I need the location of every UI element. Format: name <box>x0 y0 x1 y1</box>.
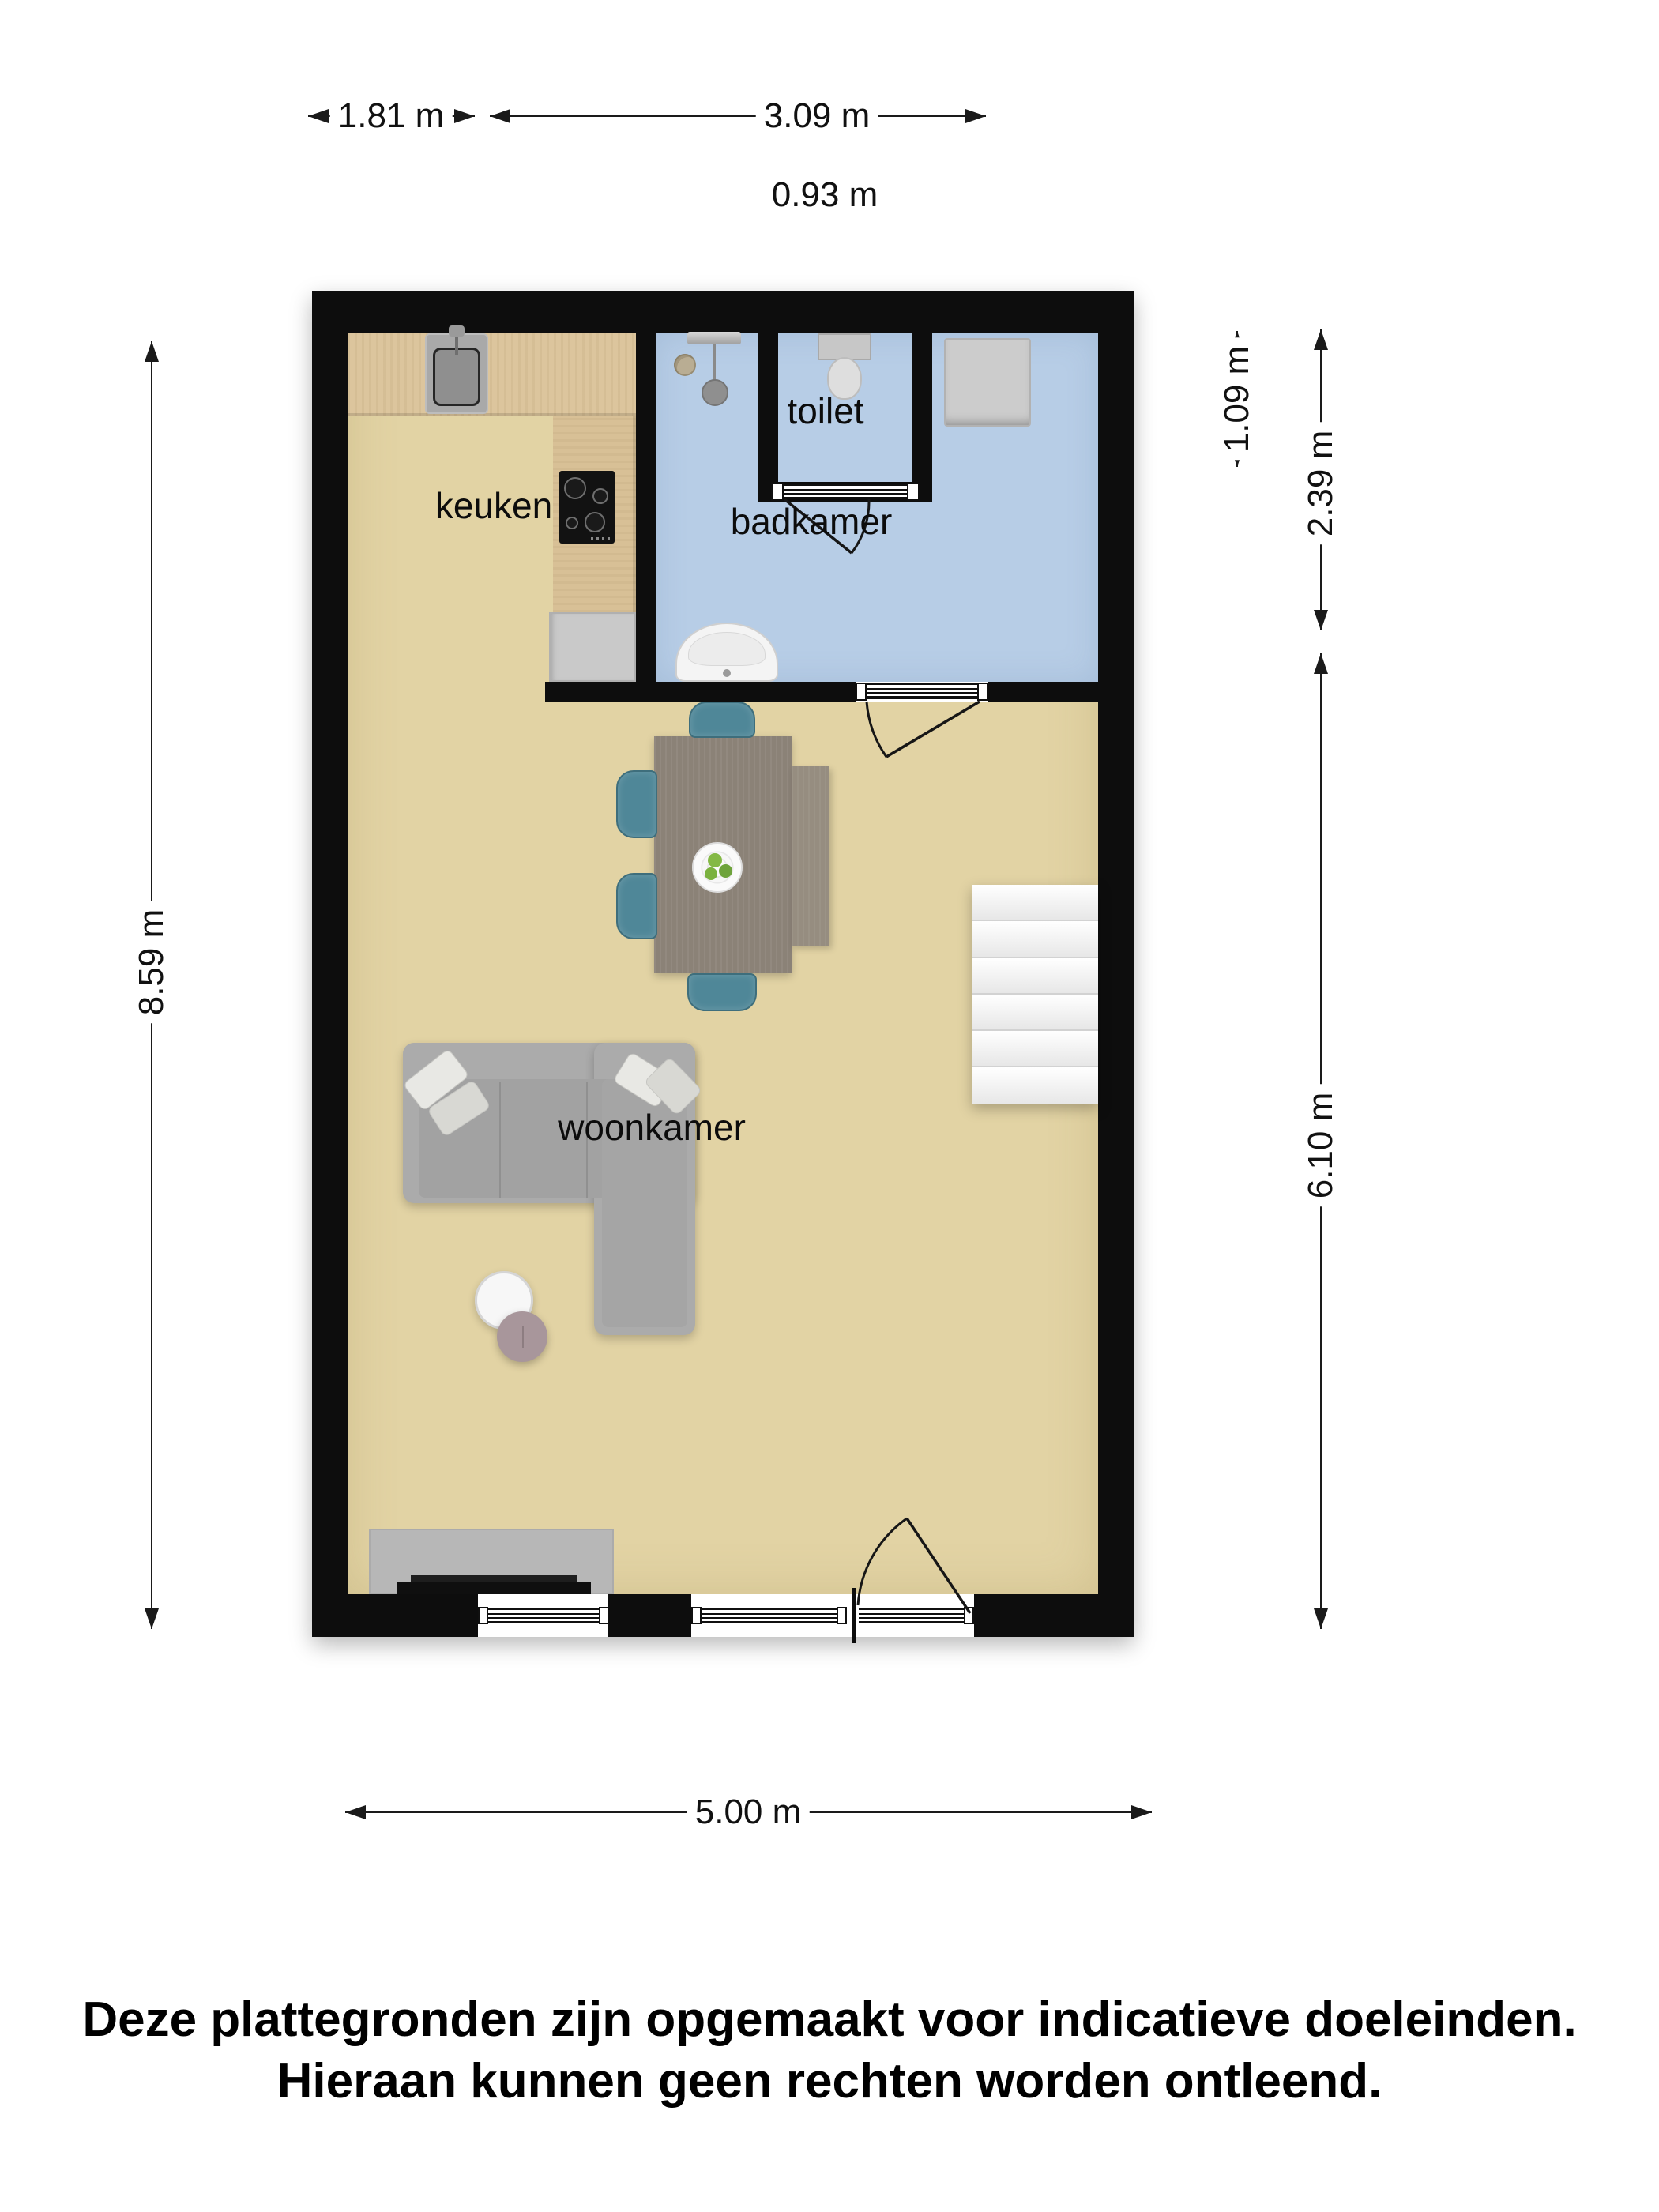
dim-bottom-total: 5.00 m <box>687 1793 810 1832</box>
corner-sofa <box>403 1043 695 1335</box>
dining-chair <box>616 770 657 838</box>
door-frame-post <box>852 1588 856 1643</box>
washing-machine-icon <box>944 338 1031 427</box>
dim-top-bathroom: 3.09 m <box>756 96 878 136</box>
stair-step <box>972 958 1098 995</box>
disclaimer: Deze plattegronden zijn opgemaakt voor i… <box>0 1989 1659 2112</box>
fruit-plate-icon <box>692 842 743 893</box>
burner <box>592 488 608 504</box>
bathroom-door-jamb-left <box>856 683 867 701</box>
room-label-keuken: keuken <box>435 484 552 527</box>
floorplan-page: { "plan": { "rooms": { "keuken": { "labe… <box>0 0 1659 2212</box>
kitchen-appliance-icon <box>549 612 636 682</box>
bathroom-door-jamb-right <box>977 683 988 701</box>
toilet-door-jamb-left <box>771 483 784 501</box>
entry-door-leaf-icon <box>859 1608 964 1623</box>
dim-top-kitchen: 1.81 m <box>330 96 453 136</box>
shower-stem <box>713 344 716 381</box>
cooktop-controls <box>591 537 611 540</box>
tv-icon <box>397 1582 591 1594</box>
toilet-door-leaf-icon <box>784 484 907 499</box>
kitchen-faucet-icon <box>449 325 465 337</box>
dim-right-living: 6.10 m <box>1301 1085 1341 1207</box>
burner <box>564 477 586 499</box>
dining-chair <box>616 873 657 939</box>
wall-kitchen-bathroom <box>636 333 656 702</box>
dim-top-toilet: 0.93 m <box>764 175 886 215</box>
room-label-badkamer: badkamer <box>731 500 893 543</box>
window-icon <box>487 1608 599 1623</box>
staircase <box>972 885 1098 1104</box>
wall-toilet-right <box>912 333 932 502</box>
stair-step <box>972 1067 1098 1104</box>
wall-bathroom-livingroom <box>545 682 1098 702</box>
kitchen-faucet-stem <box>455 337 458 355</box>
disclaimer-line-2: Hieraan kunnen geen rechten worden ontle… <box>0 2051 1659 2112</box>
cooktop-icon <box>559 471 615 544</box>
burner <box>566 517 578 529</box>
dim-line <box>490 115 986 117</box>
dining-chair <box>689 702 755 738</box>
dim-left-total: 8.59 m <box>132 901 171 1024</box>
room-label-woonkamer: woonkamer <box>558 1106 746 1149</box>
toilet-tank-icon <box>818 333 871 360</box>
stair-step <box>972 1031 1098 1067</box>
kitchen-counter-top <box>348 333 636 416</box>
stair-step <box>972 921 1098 957</box>
window-icon <box>701 1608 837 1623</box>
stair-step <box>972 885 1098 921</box>
shower-bar-icon <box>687 332 741 344</box>
burner <box>585 512 605 532</box>
room-label-toilet: toilet <box>787 389 863 432</box>
disclaimer-line-1: Deze plattegronden zijn opgemaakt voor i… <box>0 1989 1659 2051</box>
dining-chair <box>687 973 757 1011</box>
stair-step <box>972 995 1098 1031</box>
wall-toilet-left <box>758 333 778 502</box>
toilet-door-jamb-right <box>907 483 920 501</box>
shower-drain-icon <box>674 354 696 376</box>
dim-right-bathroom: 2.39 m <box>1301 423 1341 545</box>
shower-head-icon <box>702 379 728 406</box>
dim-right-toilet: 1.09 m <box>1217 338 1257 461</box>
bathroom-door-leaf-icon <box>867 683 977 699</box>
dining-bench <box>792 766 829 946</box>
side-table-round <box>497 1311 547 1362</box>
